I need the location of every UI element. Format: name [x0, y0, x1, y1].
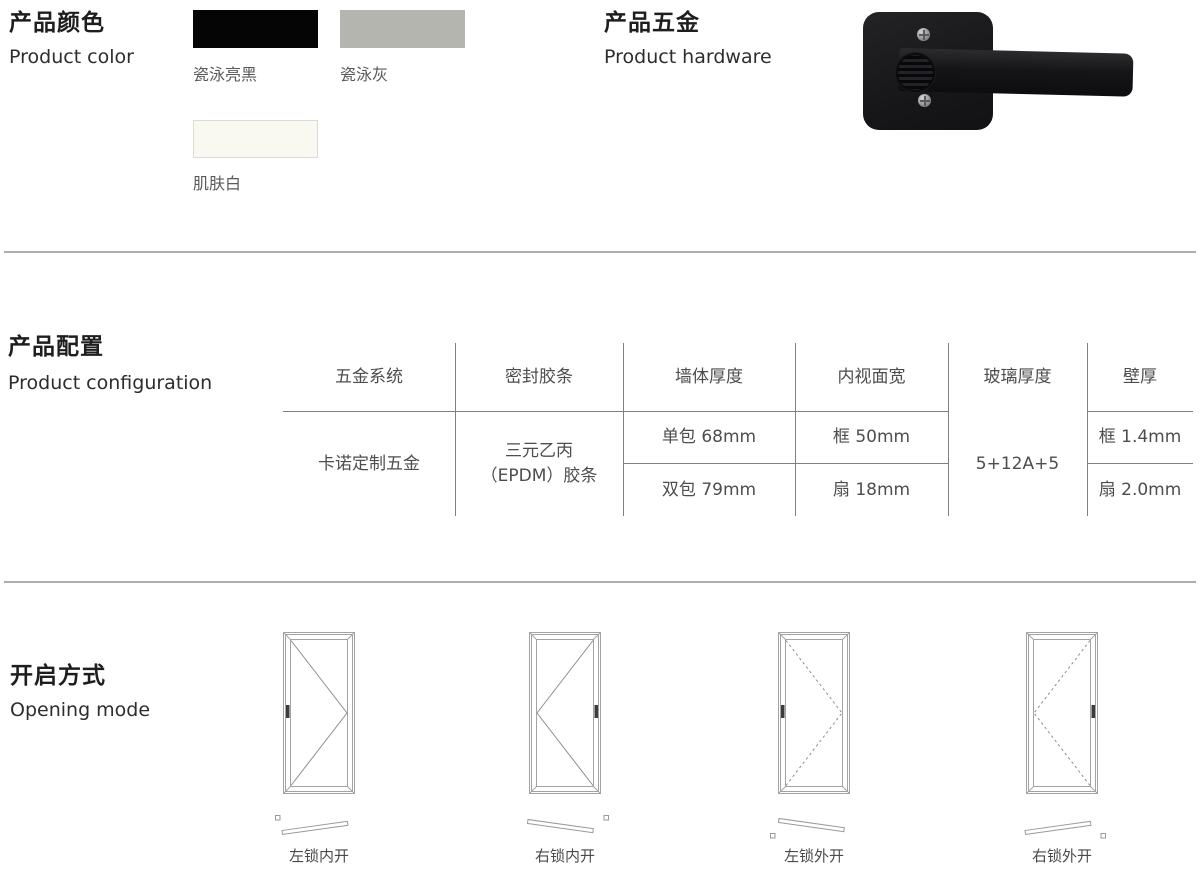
- swatch-porcelain-bright-black: [193, 10, 318, 48]
- value-wall-double: 双包 79mm: [623, 464, 795, 516]
- swatch-label: 肌肤白: [193, 170, 241, 194]
- value-wall-single: 单包 68mm: [623, 412, 795, 463]
- value-hardware-system: 卡诺定制五金: [283, 412, 455, 516]
- door-handle-icon: [595, 705, 599, 718]
- swing-diagram: [274, 814, 364, 840]
- screw-icon: [917, 28, 930, 41]
- swing-diagram: [769, 814, 859, 840]
- door-diagram: [778, 632, 850, 794]
- hardware-title-cn: 产品五金: [604, 10, 772, 36]
- door-handle-icon: [781, 705, 785, 718]
- opening-title-en: Opening mode: [10, 700, 150, 722]
- door-handle-icon: [1092, 705, 1096, 718]
- mode-label: 左锁外开: [744, 845, 884, 866]
- config-section-title: 产品配置 Product configuration: [8, 334, 212, 395]
- opening-section-title: 开启方式 Opening mode: [10, 663, 150, 722]
- header-wall-thickness: 墙体厚度: [623, 343, 795, 411]
- door-diagram: [529, 632, 601, 794]
- header-seal-strip: 密封胶条: [455, 343, 623, 411]
- config-title-en: Product configuration: [8, 373, 212, 395]
- value-glass-thickness: 5+12A+5: [948, 412, 1087, 516]
- door-diagram: [1026, 632, 1098, 794]
- thumbturn-knob: [896, 53, 935, 92]
- swatch-label: 瓷泳灰: [340, 61, 388, 85]
- mode-label: 右锁外开: [992, 845, 1132, 866]
- configuration-table: 五金系统 密封胶条 墙体厚度 内视面宽 玻璃厚度 壁厚 卡诺定制五金 三元乙丙 …: [283, 343, 1193, 516]
- color-title-cn: 产品颜色: [9, 10, 134, 36]
- door-handle-icon: [286, 705, 290, 718]
- header-glass-thickness: 玻璃厚度: [948, 343, 1087, 411]
- header-inner-face-width: 内视面宽: [795, 343, 948, 411]
- opening-mode-left-lock-outward: 左锁外开: [744, 632, 884, 872]
- hardware-section-title: 产品五金 Product hardware: [604, 10, 772, 69]
- section-divider: [4, 581, 1196, 583]
- header-profile-thickness: 壁厚: [1087, 343, 1193, 411]
- value-face-frame: 框 50mm: [795, 412, 948, 463]
- swing-diagram: [520, 814, 610, 840]
- seal-strip-line1: 三元乙丙: [505, 439, 573, 464]
- opening-title-cn: 开启方式: [10, 663, 150, 689]
- seal-strip-line2: （EPDM）胶条: [481, 464, 598, 489]
- door-handle-image: [863, 10, 1183, 135]
- mode-label: 左锁内开: [249, 845, 389, 866]
- opening-mode-left-lock-inward: 左锁内开: [249, 632, 389, 872]
- screw-icon: [918, 94, 931, 107]
- value-profile-sash: 扇 2.0mm: [1087, 464, 1193, 516]
- hardware-title-en: Product hardware: [604, 47, 772, 69]
- opening-mode-right-lock-inward: 右锁内开: [495, 632, 635, 872]
- value-face-sash: 扇 18mm: [795, 464, 948, 516]
- config-title-cn: 产品配置: [8, 334, 212, 360]
- swatch-label: 瓷泳亮黑: [193, 61, 257, 85]
- swing-diagram: [1017, 814, 1107, 840]
- door-diagram: [283, 632, 355, 794]
- value-seal-strip: 三元乙丙 （EPDM）胶条: [455, 412, 623, 516]
- header-hardware-system: 五金系统: [283, 343, 455, 411]
- product-spec-sheet: 产品颜色 Product color 瓷泳亮黑 瓷泳灰 肌肤白 产品五金 Pro…: [0, 0, 1200, 873]
- swatch-skin-white: [193, 120, 318, 158]
- color-section-title: 产品颜色 Product color: [9, 10, 134, 69]
- section-divider: [4, 251, 1196, 253]
- color-title-en: Product color: [9, 47, 134, 69]
- value-profile-frame: 框 1.4mm: [1087, 412, 1193, 463]
- swatch-porcelain-gray: [340, 10, 465, 48]
- opening-mode-right-lock-outward: 右锁外开: [992, 632, 1132, 872]
- mode-label: 右锁内开: [495, 845, 635, 866]
